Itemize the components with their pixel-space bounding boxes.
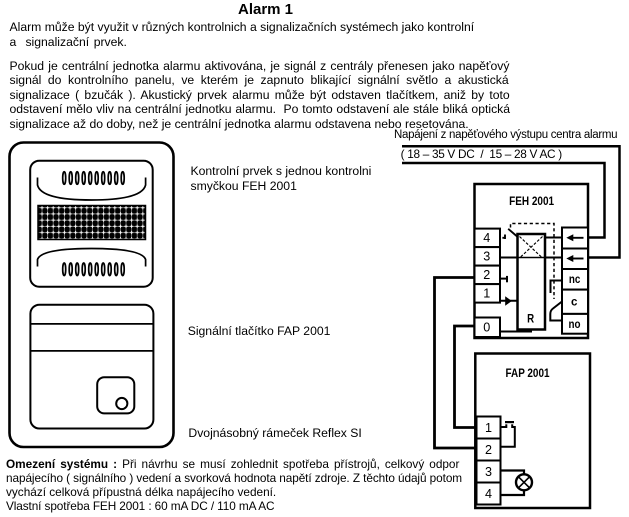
svg-text:1: 1 <box>483 287 490 301</box>
svg-text:3: 3 <box>483 250 490 264</box>
svg-text:4: 4 <box>483 231 490 245</box>
svg-text:FEH 2001: FEH 2001 <box>509 194 554 208</box>
svg-text:4: 4 <box>485 487 492 501</box>
svg-text:FAP 2001: FAP 2001 <box>506 366 550 380</box>
svg-text:R: R <box>527 312 534 326</box>
svg-text:nc: nc <box>569 274 581 286</box>
svg-text:2: 2 <box>483 268 490 282</box>
svg-text:c: c <box>571 297 578 309</box>
svg-text:no: no <box>569 319 581 331</box>
svg-text:3: 3 <box>485 465 492 479</box>
svg-text:2: 2 <box>485 443 492 457</box>
svg-text:1: 1 <box>485 421 492 435</box>
svg-text:0: 0 <box>483 321 490 335</box>
